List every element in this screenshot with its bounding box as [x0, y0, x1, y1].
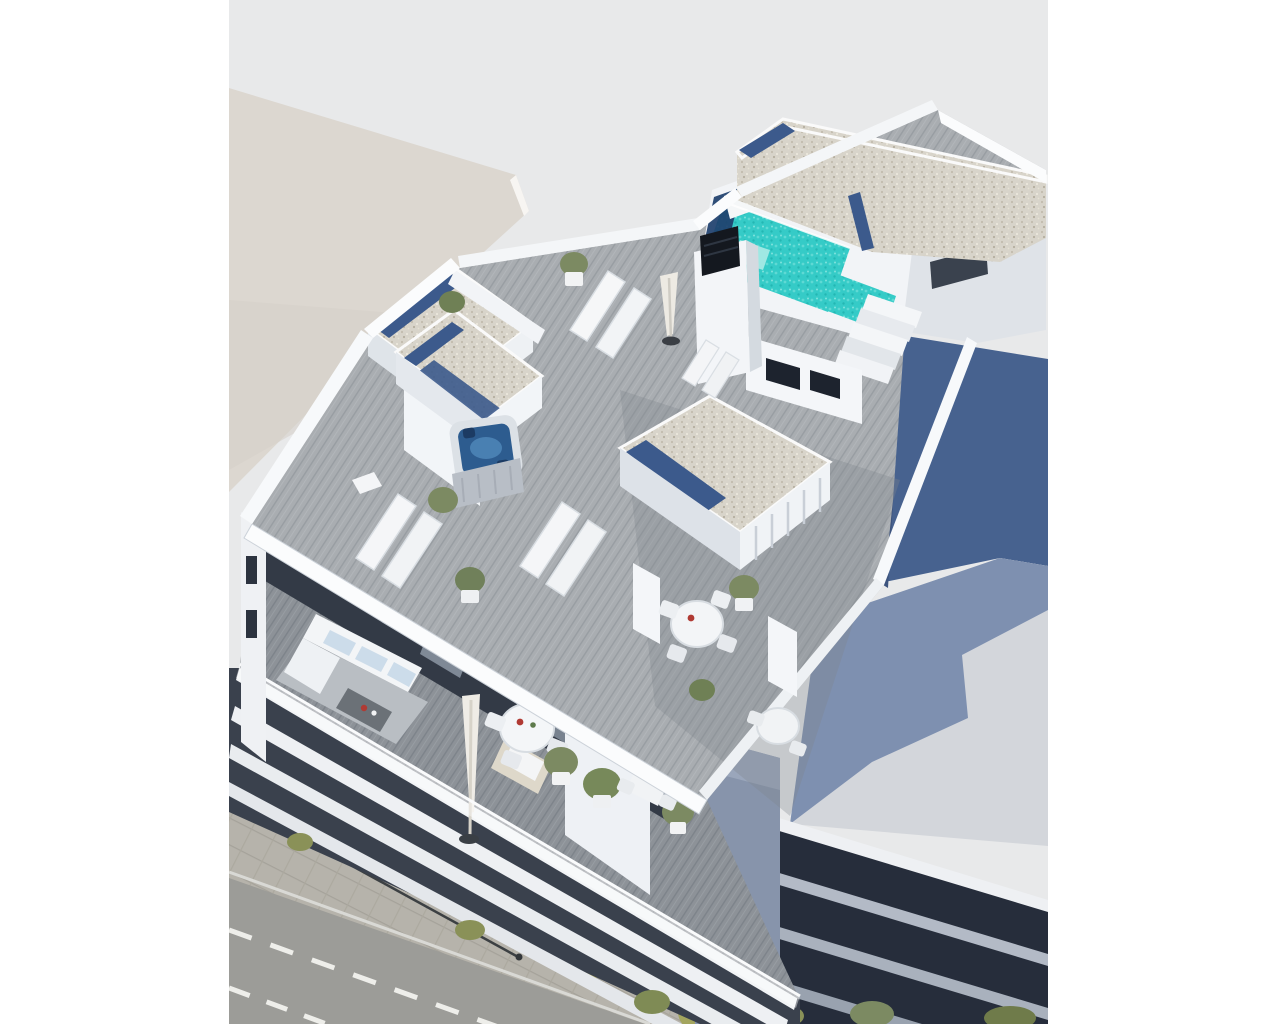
architectural-rendering [0, 0, 1280, 1024]
plant [428, 487, 458, 513]
plant [455, 567, 485, 593]
plant [689, 679, 715, 701]
rendering-canvas [0, 0, 1280, 1024]
plant [729, 575, 759, 601]
round-table [757, 708, 799, 744]
balcony-bush [287, 833, 313, 851]
balcony-bush [634, 990, 670, 1014]
west-window [246, 610, 257, 638]
west-window [246, 556, 257, 584]
balcony-bush [455, 920, 485, 940]
plant [439, 291, 465, 313]
lamp-head [516, 954, 523, 961]
jacuzzi [448, 414, 524, 508]
